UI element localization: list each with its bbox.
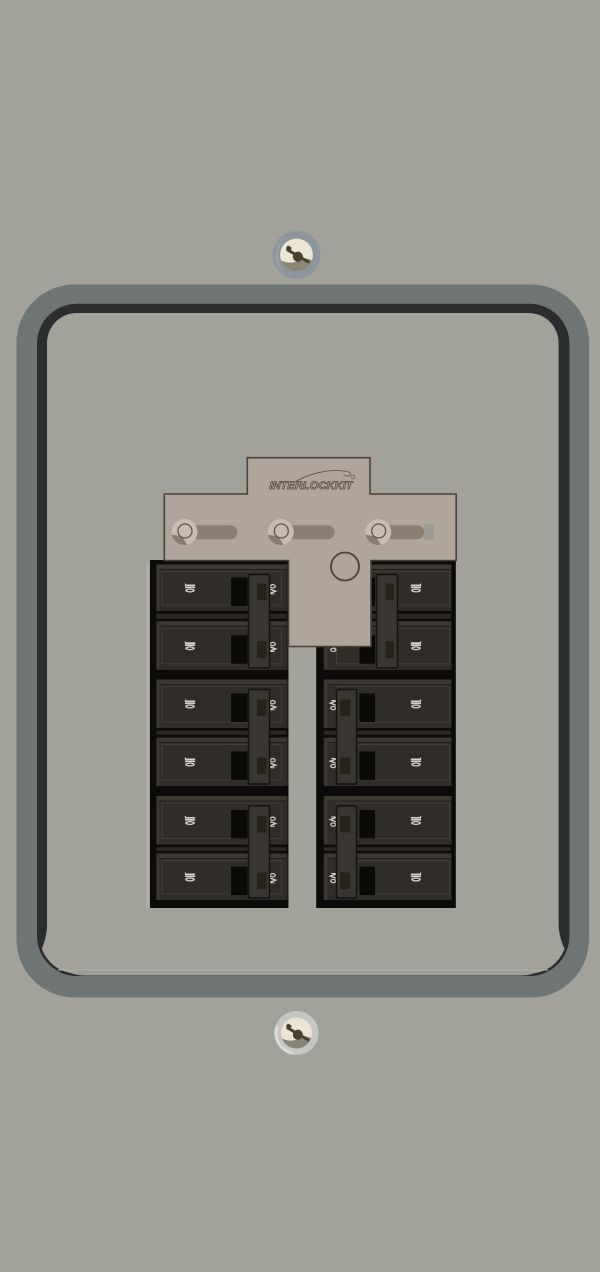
svg-text:INTERLOCKKIT: INTERLOCKKIT: [269, 480, 353, 492]
